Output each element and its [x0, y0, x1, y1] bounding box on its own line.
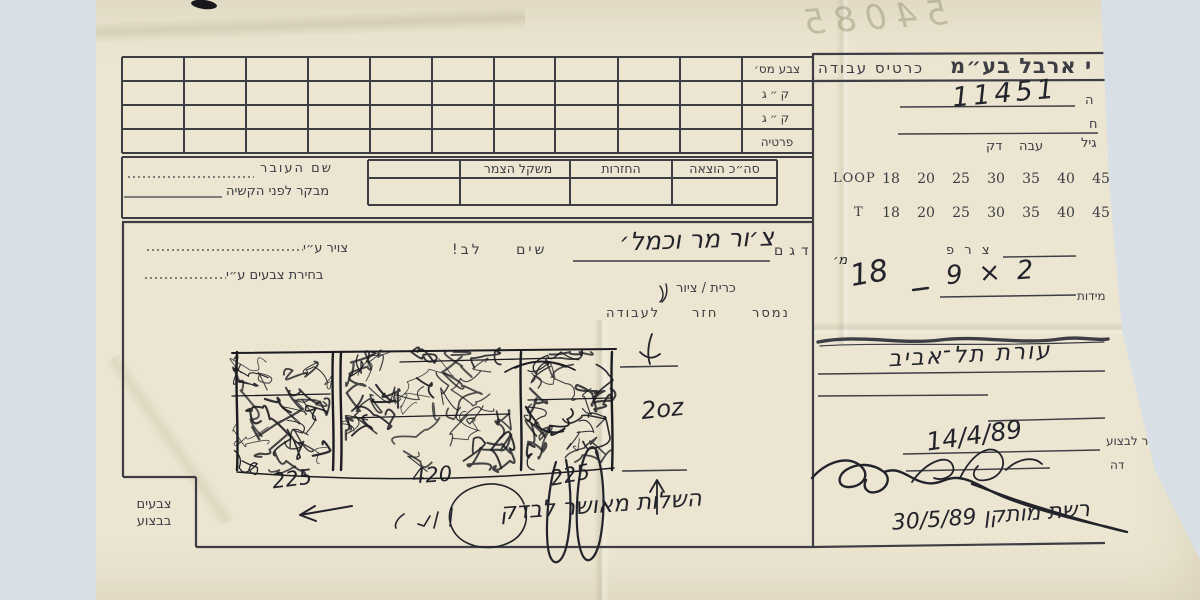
gauge-grade-label: גיל: [1081, 136, 1097, 151]
worker-name-label: שם העובר: [260, 161, 333, 176]
tsaraf-label: צ ר פ: [946, 243, 992, 258]
order-number-handwritten: 11451: [951, 73, 1059, 113]
field-label-fragment-top: ה: [1085, 93, 1094, 108]
gauge-value: 40: [1051, 171, 1081, 187]
total-issue-header: סה״כ הוצאה: [674, 161, 775, 176]
gauge-thick-label: עבה: [1019, 139, 1043, 154]
delivery-date-handwritten: 14/4/89: [924, 414, 1023, 456]
drawn-by-label: צויר ע״י: [303, 241, 348, 256]
weight-note-handwritten: 2oz: [640, 393, 685, 425]
delivery-label-fragment: ר לבצוע: [1106, 434, 1148, 448]
to-work-column-label: לעבודה: [606, 306, 660, 321]
net-installed-handwritten: רשת מותקן 30/5/89: [857, 497, 1090, 538]
gauge-value: 40: [1051, 205, 1081, 221]
finish-label-fragment: דה: [1110, 458, 1124, 472]
size-handwritten: 9 × 2: [945, 255, 1038, 291]
colors-in-progress-label-line2: בבצוע: [128, 514, 180, 529]
panel-width-right: 225: [548, 459, 592, 490]
inspector-label: מבקר לפני הקשיה: [226, 184, 329, 199]
fold-crease-horizontal: [812, 322, 1200, 336]
card-title: כרטיס עבודה: [818, 59, 924, 77]
gauge-t-label: T: [854, 205, 863, 220]
gauge-value: 35: [1016, 205, 1046, 221]
returned-column-label: חזר: [692, 306, 718, 321]
size-unit-handwritten: מ׳: [833, 253, 847, 268]
client-note-handwritten: עורת תל־אביב: [887, 338, 1052, 373]
gauge-value: 45: [1086, 171, 1116, 187]
gauge-value: 45: [1086, 205, 1116, 221]
gauge-value: 18: [876, 205, 906, 221]
returns-header: החזרות: [572, 161, 670, 176]
pen-mark: [191, 0, 218, 11]
model-value-handwritten: צ׳ור מר וכמל׳: [558, 222, 775, 259]
color-table-row-label-3: ק״ג: [744, 111, 810, 125]
wool-weight-header: משקל הצמר: [468, 161, 568, 176]
colors-in-progress-label-line1: צבעים: [128, 497, 180, 512]
gauge-thin-label: דק: [986, 139, 1002, 154]
gauge-value: 25: [946, 171, 976, 187]
attention-label: שים לב!: [452, 242, 547, 258]
color-table-row-label-2: ק״ג: [744, 87, 810, 101]
panel-width-left: 225: [271, 465, 314, 494]
fold-crease-vertical: [594, 320, 610, 600]
delivered-column-label: נמסר: [752, 306, 790, 321]
scanned-work-card: 54085 כרטיס עבודה י ארבל בע״מ 11451 ה ח …: [0, 0, 1200, 600]
color-table-row-label-1: צבע מס׳: [744, 62, 810, 76]
pencil-note: 54085: [687, 0, 949, 51]
approval-note-handwritten: השלות מאושר לבדק: [371, 486, 702, 535]
gauge-value: 20: [911, 205, 941, 221]
gauge-value: 18: [876, 171, 906, 187]
cut-or-draw-label: כרית / ציור: [676, 281, 736, 296]
company-name: י ארבל בע״מ: [950, 54, 1092, 78]
gauge-value: 20: [911, 171, 941, 187]
gauge-value: 25: [946, 205, 976, 221]
paper-sheet: 54085 כרטיס עבודה י ארבל בע״מ 11451 ה ח …: [0, 0, 1200, 600]
wrinkle-top-left: [95, 7, 526, 44]
sizes-label-fragment: מידות: [1077, 289, 1106, 303]
gauge-value: 30: [981, 205, 1011, 221]
color-table-row-label-4: פרטיה: [744, 135, 810, 149]
panel-width-center: 420: [411, 462, 453, 489]
color-pick-label: בחירת צבעים ע״י: [226, 268, 323, 283]
size-total-handwritten: 18: [847, 253, 891, 294]
gauge-value: 35: [1016, 171, 1046, 187]
gauge-loop-label: LOOP: [833, 171, 876, 186]
gauge-value: 30: [981, 171, 1011, 187]
model-label: דגם: [774, 243, 815, 259]
field-label-fragment-bottom: ח: [1089, 117, 1098, 132]
